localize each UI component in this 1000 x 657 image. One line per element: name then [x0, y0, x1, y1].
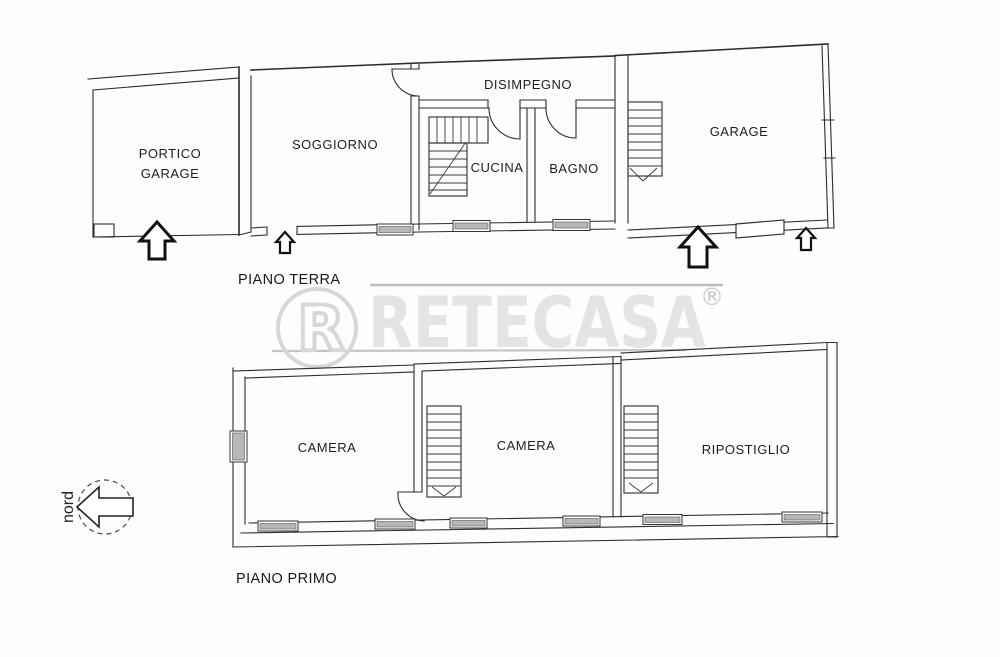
- door-arc-bagno: [546, 108, 576, 138]
- entrance-arrow-icon: [276, 232, 294, 253]
- floor-plan-piano-primo: CAMERA CAMERA RIPOSTIGLIO PIANO PRIMO: [230, 343, 838, 588]
- room-label-cucina: CUCINA: [471, 160, 524, 175]
- garage-door-marker: [736, 220, 784, 238]
- window-marker: [453, 221, 490, 232]
- floor-caption-piano-primo: PIANO PRIMO: [236, 571, 337, 587]
- room-label-disimpegno: DISIMPEGNO: [484, 77, 572, 92]
- room-label-camera-1: CAMERA: [298, 440, 357, 455]
- room-label-soggiorno: SOGGIORNO: [292, 137, 378, 152]
- window-marker: [782, 512, 822, 522]
- floor-plan-piano-terra: PORTICO GARAGE SOGGIORNO DISIMPEGNO CUCI…: [88, 44, 835, 288]
- staircase-garage: [628, 102, 662, 181]
- room-label-garage: GARAGE: [710, 124, 769, 139]
- door-arc-cucina: [489, 108, 520, 139]
- window-marker: [377, 224, 413, 235]
- north-arrow-icon: [77, 487, 133, 527]
- window-marker: [643, 515, 682, 525]
- staircase-cucina: [429, 117, 488, 196]
- room-label-portico-garage-line1: PORTICO: [139, 146, 202, 161]
- room-label-camera-2: CAMERA: [497, 438, 556, 453]
- room-label-ripostiglio: RIPOSTIGLIO: [702, 442, 791, 457]
- logo-letter: R: [297, 292, 345, 365]
- window-marker: [553, 220, 590, 231]
- room-label-bagno: BAGNO: [549, 161, 598, 176]
- window-marker: [450, 518, 487, 528]
- window-marker: [563, 516, 600, 526]
- entrance-arrow-icon: [140, 222, 174, 259]
- compass-label: nord: [60, 491, 77, 523]
- window-marker: [230, 431, 247, 462]
- floor-caption-piano-terra: PIANO TERRA: [238, 272, 340, 288]
- door-arc-soggiorno: [392, 69, 419, 96]
- walls-piano-terra: [88, 44, 835, 238]
- registered-trademark-icon: ®: [700, 283, 724, 311]
- entrance-arrow-icon: [680, 227, 716, 267]
- window-marker: [258, 521, 298, 531]
- retecasa-logo: R: [278, 289, 356, 367]
- staircase-ripostiglio: [624, 406, 658, 493]
- room-label-portico-garage-line2: GARAGE: [141, 166, 200, 181]
- staircase-camera: [427, 406, 461, 497]
- floor-plan-page: R RETECASA ®: [0, 0, 1000, 657]
- window-marker: [375, 519, 415, 529]
- floor-plan-canvas: R RETECASA ®: [0, 0, 1000, 657]
- watermark: R RETECASA ®: [272, 282, 724, 367]
- entrance-arrow-icon: [797, 228, 815, 250]
- north-compass: nord: [60, 480, 133, 534]
- door-arc-camera: [398, 492, 424, 521]
